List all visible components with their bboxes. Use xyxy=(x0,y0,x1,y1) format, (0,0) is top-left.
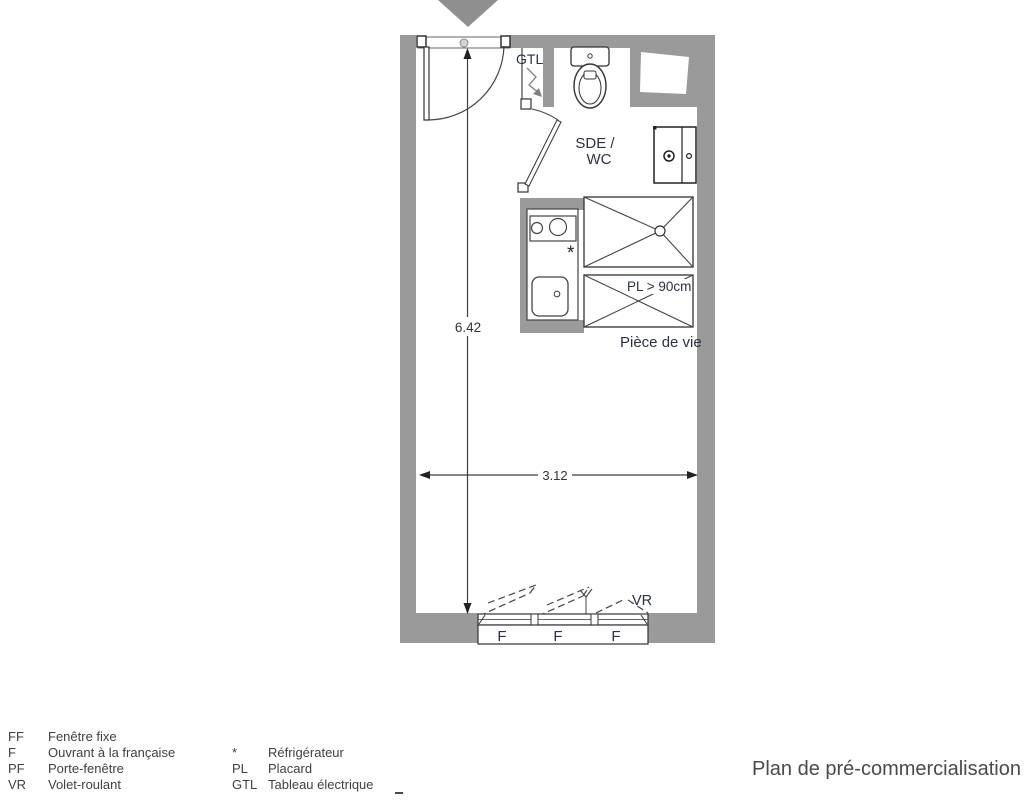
legend-column-1: FFFenêtre fixe FOuvrant à la française P… xyxy=(8,729,175,793)
door-spot-symbol xyxy=(460,39,468,47)
wall-top xyxy=(510,35,715,48)
window-mullion-2 xyxy=(591,614,598,625)
triple-window: F F F xyxy=(478,585,648,645)
window-pane-label-1: F xyxy=(497,628,506,645)
dimension-vertical: 6.42 xyxy=(451,48,484,614)
legend-label: Porte-fenêtre xyxy=(48,761,124,776)
cabinet-knob-large-dot xyxy=(667,154,670,157)
legend-label: Tableau électrique xyxy=(268,777,374,792)
shutter-label: VR xyxy=(632,593,652,609)
toilet-tank xyxy=(571,47,609,66)
window-open-dashes xyxy=(479,585,648,616)
door-jamb-right xyxy=(501,36,510,47)
technical-shaft-hatch xyxy=(640,52,689,94)
floor-plan-page: * PL > 90cm F F F xyxy=(0,0,1026,800)
legend-abbr: * xyxy=(232,745,268,761)
window-pane-label-2: F xyxy=(553,628,562,645)
fridge-marker: * xyxy=(567,243,575,264)
wall-kitchen-bottom xyxy=(520,320,584,333)
legend-abbr: VR xyxy=(8,777,48,793)
legend-item-pf: PFPorte-fenêtre xyxy=(8,761,175,777)
wall-bottom-left xyxy=(400,613,478,643)
bathroom-door xyxy=(518,99,561,192)
floor-plan-drawing: * PL > 90cm F F F xyxy=(0,0,1026,800)
shower-drain xyxy=(655,226,665,236)
dim-height-label: 6.42 xyxy=(455,320,481,335)
legend-item-pl: PLPlacard xyxy=(232,761,374,777)
legend-abbr: PF xyxy=(8,761,48,777)
bathroom-door-arc xyxy=(532,109,558,120)
entrance-door xyxy=(417,36,510,120)
room-label-line2: WC xyxy=(587,151,612,168)
dim-h-arrow-left xyxy=(419,471,430,479)
wall-bottom-right xyxy=(648,613,715,643)
shower-tray xyxy=(584,197,693,267)
placard-label: PL > 90cm xyxy=(627,279,691,294)
legend-abbr: GTL xyxy=(232,777,268,793)
legend-item-f: FOuvrant à la française xyxy=(8,745,175,761)
window-pane-label-3: F xyxy=(611,628,620,645)
window-mullion-1 xyxy=(531,614,538,625)
shower-outline xyxy=(584,197,693,267)
bathroom-door-leaf xyxy=(525,120,561,186)
wall-gtl-partition xyxy=(543,48,554,107)
legend-label: Volet-roulant xyxy=(48,777,121,792)
bathroom-door-hinge-top xyxy=(521,99,531,109)
dim-h-arrow-right xyxy=(687,471,698,479)
legend-item-gtl: GTLTableau électrique xyxy=(232,777,374,793)
living-room-label: Pièce de vie xyxy=(620,334,702,351)
dim-v-arrow-bottom xyxy=(464,603,472,614)
entrance-arrow-icon xyxy=(438,0,498,27)
legend-label: Placard xyxy=(268,761,312,776)
legend-label: Fenêtre fixe xyxy=(48,729,117,744)
gtl-zigzag-arrow xyxy=(527,68,539,93)
gtl-label: GTL xyxy=(516,51,543,67)
legend-item-ff: FFFenêtre fixe xyxy=(8,729,175,745)
room-label-line1: SDE / xyxy=(575,135,615,152)
wall-kitchen-top xyxy=(520,198,584,210)
legend-item-fridge: *Réfrigérateur xyxy=(232,745,374,761)
stray-dash-mark xyxy=(395,792,403,794)
door-jamb-left xyxy=(417,36,426,47)
wall-left xyxy=(400,35,416,643)
kitchenette: * xyxy=(527,209,578,320)
legend-label: Réfrigérateur xyxy=(268,745,344,760)
dim-width-label: 3.12 xyxy=(542,468,567,483)
placard: PL > 90cm xyxy=(584,275,693,327)
legend-abbr: PL xyxy=(232,761,268,777)
bathroom-cabinet xyxy=(653,126,696,183)
dim-v-arrow-top xyxy=(464,48,472,59)
legend-abbr: FF xyxy=(8,729,48,745)
cabinet-corner-dot xyxy=(653,126,657,130)
page-title: Plan de pré-commercialisation xyxy=(752,758,1021,781)
wall-kitchen-left xyxy=(520,198,527,333)
toilet xyxy=(571,47,609,108)
legend-column-2: *Réfrigérateur PLPlacard GTLTableau élec… xyxy=(232,745,374,793)
toilet-flush xyxy=(584,71,596,79)
legend-abbr: F xyxy=(8,745,48,761)
legend-item-vr: VRVolet-roulant xyxy=(8,777,175,793)
door-leaf xyxy=(424,47,429,120)
dimension-horizontal: 3.12 xyxy=(419,466,698,483)
legend-label: Ouvrant à la française xyxy=(48,745,175,760)
cabinet-knob-small xyxy=(687,154,692,159)
kitchen-sink xyxy=(532,277,568,316)
